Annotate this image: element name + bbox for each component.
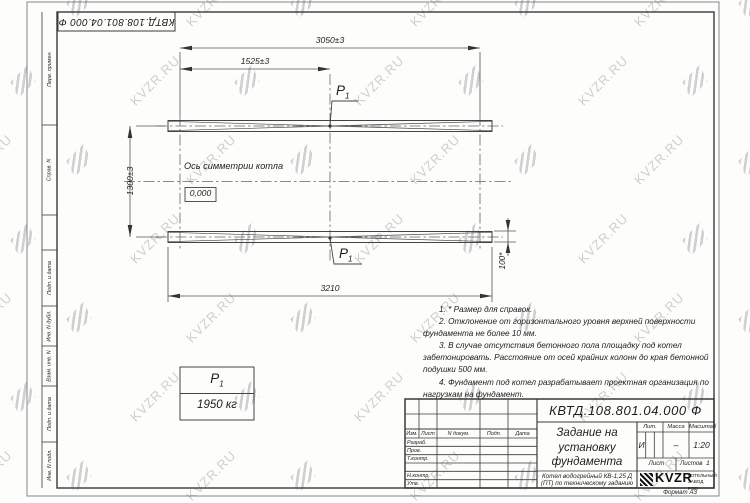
titleblock-doc-number: КВТД.108.801.04.000 Ф [537,399,714,422]
notes-block: 1. * Размер для справок. 2. Отклонение о… [423,304,729,401]
p1-top-label: P1 [336,83,350,101]
load-table-value: 1950 кг [180,399,254,412]
margin-label-inv-podl: Инв. N подл. [42,442,57,488]
doc-number-stamp: КВТД.108.801.04.000 Ф [58,12,175,31]
tb-row-utv: Утв. [407,481,419,487]
tb-scale-value: 1:20 [689,432,714,458]
tb-lit-label: Лит. [637,424,663,431]
note-3: 3. В случае отсутствия бетонного пола пл… [423,340,729,376]
kvzr-logo-text: KVZR [655,471,692,486]
tb-header-ndok: N докум. [437,431,480,437]
centerlines [124,74,512,263]
leader-p1-top [328,101,358,128]
symmetry-axis-label: Ось симметрии котла [184,161,283,172]
tb-sheet-label: Лист [637,460,676,467]
margin-label-vzam-inv: Взам. инв. N [42,346,57,386]
tb-sheets-value: 1 [706,460,710,468]
margin-label-podp-data-2: Подп. и дата [42,386,57,442]
titleblock-title: Задание на установку фундамента [539,426,635,470]
drawing-sheet: { "sheet": { "doc_number": "КВТД.108.801… [0,0,750,500]
note-4: 4. Фундамент под котел разрабатывает про… [423,377,729,401]
tb-header-list: Лист [419,431,437,437]
tb-header-podp: Подп. [480,431,508,437]
tb-scale-label: Масштаб [689,424,714,431]
tb-header-izm: Изм. [405,431,419,437]
tb-row-tkontr: Т.контр. [407,456,429,462]
dim-100-label: 100* [498,236,508,286]
tb-row-nkontr: Н.контр. [407,473,430,479]
margin-label-perv-primen: Перв. примен. [42,12,57,125]
format-label: Формат А3 [640,489,720,496]
dim-1300-label: 1300±3 [126,151,136,211]
tb-mass-value: – [663,432,689,458]
tb-row-prov: Пров. [407,448,421,454]
titleblock-subtitle: Котел водогрейный КВ-1,25 Д (ПТ) по техн… [538,473,636,488]
tb-lit-value: И [637,432,646,458]
dim-3210-label: 3210 [290,284,370,294]
tb-sheets-label: Листов [680,460,703,467]
dimension-1525 [180,67,330,72]
level-mark-value: 0,000 [185,189,216,199]
margin-label-podp-data-1: Подп. и дата [42,250,57,306]
dim-3050-label: 3050±3 [285,36,375,46]
dim-1525-label: 1525±3 [210,57,300,67]
tb-mass-label: Масса [663,424,689,431]
tb-row-razrab: Разраб. [407,440,427,446]
load-table-symbol: P1 [180,371,254,389]
tb-header-data: Дата [508,431,537,437]
note-2: 2. Отклонение от горизонтального уровня … [423,316,729,340]
margin-label-sprav-n: Справ. N [42,125,57,215]
note-1: 1. * Размер для справок. [423,304,729,316]
margin-label-inv-dubl: Инв. N дубл. [42,306,57,346]
kvzr-logo-icon [640,473,653,486]
p1-bottom-label: P1 [339,246,353,264]
